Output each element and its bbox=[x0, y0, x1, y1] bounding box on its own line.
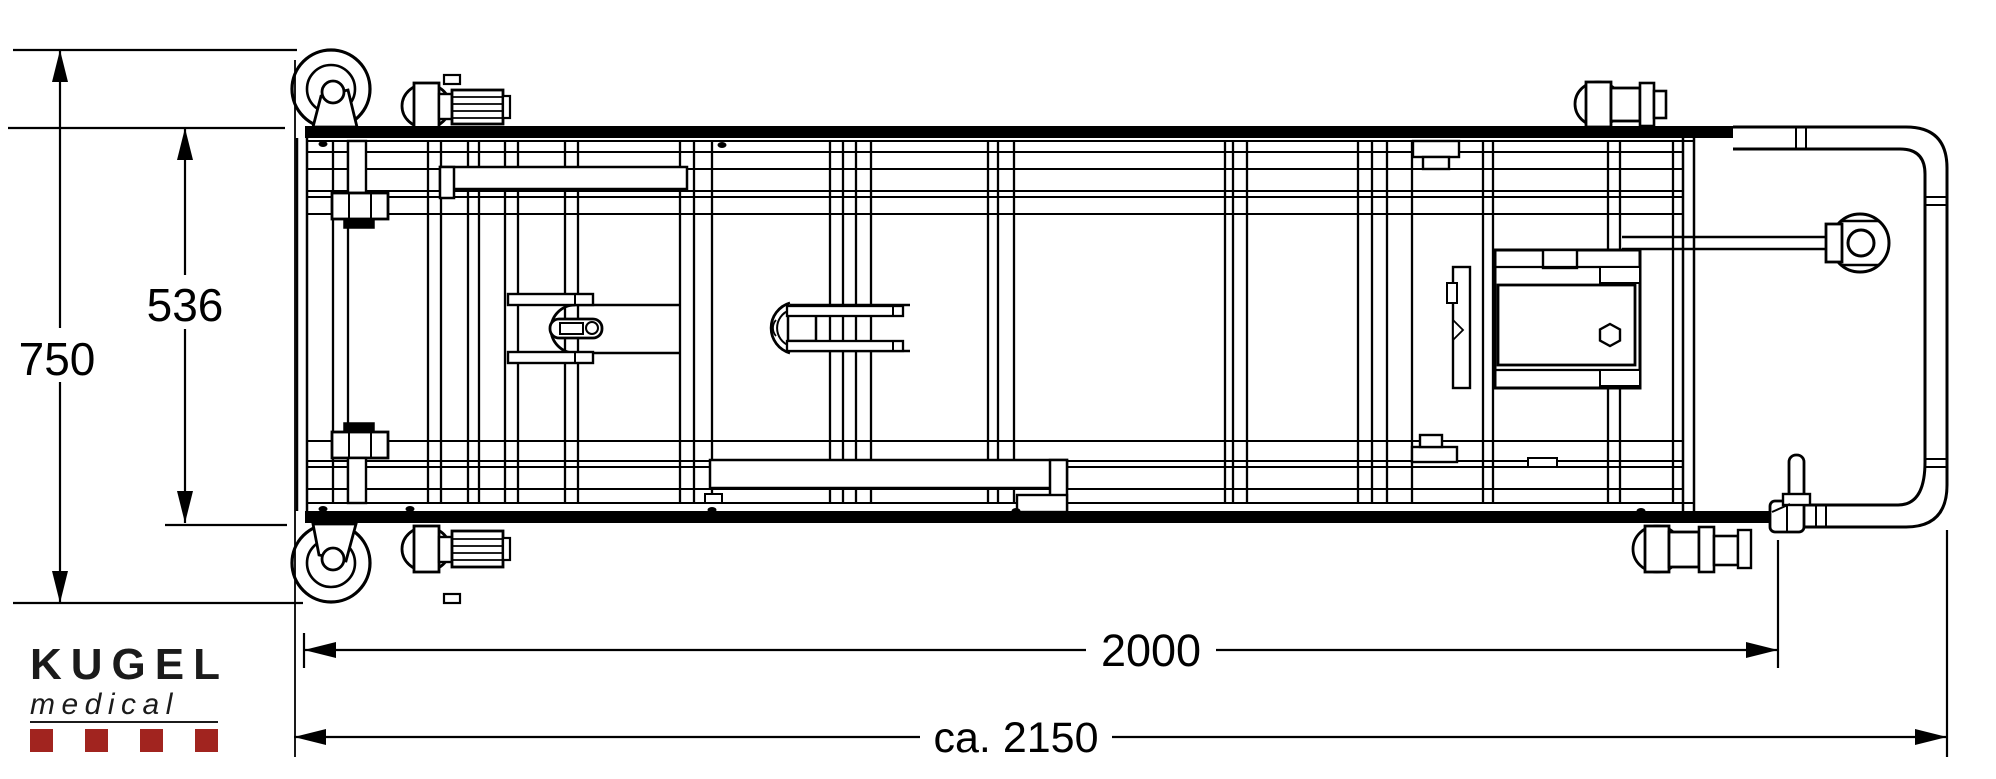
dimension-label-750: 750 bbox=[19, 333, 96, 385]
motor-bottom-left bbox=[402, 526, 510, 603]
logo-square bbox=[30, 729, 53, 752]
dimension-arrow bbox=[294, 729, 326, 745]
logo-square bbox=[85, 729, 108, 752]
logo-squares bbox=[30, 729, 218, 752]
caster-top-left bbox=[292, 50, 370, 128]
caster-bottom-left bbox=[292, 524, 370, 602]
tray-beam-bottom bbox=[710, 460, 1067, 512]
bolt-bracket-top-right bbox=[1413, 141, 1459, 169]
bolt-bracket-bottom-left bbox=[332, 423, 388, 503]
dimension-arrow bbox=[177, 128, 193, 160]
dimension-label-536: 536 bbox=[147, 279, 224, 331]
frame-side-edges bbox=[297, 138, 1694, 511]
dimension-arrow bbox=[1746, 642, 1778, 658]
motor-top-right bbox=[1575, 82, 1666, 127]
bolt-bracket-top-left bbox=[332, 141, 388, 228]
lift-box bbox=[1447, 250, 1640, 388]
dimension-arrow bbox=[52, 571, 68, 603]
motor-top-left bbox=[402, 75, 510, 129]
cylinder-connector bbox=[771, 303, 910, 353]
dimension-arrow bbox=[304, 642, 336, 658]
adjustment-knob bbox=[1622, 214, 1889, 272]
dimension-frame-length: 2000 bbox=[304, 540, 1778, 676]
logo-square bbox=[195, 729, 218, 752]
push-handle bbox=[1733, 127, 1947, 532]
dimension-label-2000: 2000 bbox=[1101, 625, 1201, 676]
kugel-medical-logo: KUGEL medical bbox=[30, 643, 230, 752]
logo-square bbox=[140, 729, 163, 752]
logo-underline bbox=[30, 721, 218, 723]
dimension-label-ca2150: ca. 2150 bbox=[934, 714, 1099, 762]
motor-bottom-right bbox=[1633, 526, 1751, 572]
logo-division-text: medical bbox=[30, 690, 230, 720]
dimension-arrow bbox=[52, 50, 68, 82]
tray-beam-top bbox=[440, 167, 687, 198]
frame-inner-rails bbox=[307, 141, 1694, 503]
frame-vertical-posts bbox=[333, 141, 1673, 503]
dimension-arrow bbox=[177, 491, 193, 523]
dimension-arrow bbox=[1915, 729, 1947, 745]
dimension-inner-width: 536 bbox=[8, 128, 287, 525]
technical-drawing: 750 536 2000 ca. 2150 bbox=[0, 0, 1996, 779]
fork-connector bbox=[508, 294, 680, 363]
logo-brand-text: KUGEL bbox=[30, 643, 230, 687]
drawing-sheet: 750 536 2000 ca. 2150 KUGEL medical bbox=[0, 0, 1996, 779]
